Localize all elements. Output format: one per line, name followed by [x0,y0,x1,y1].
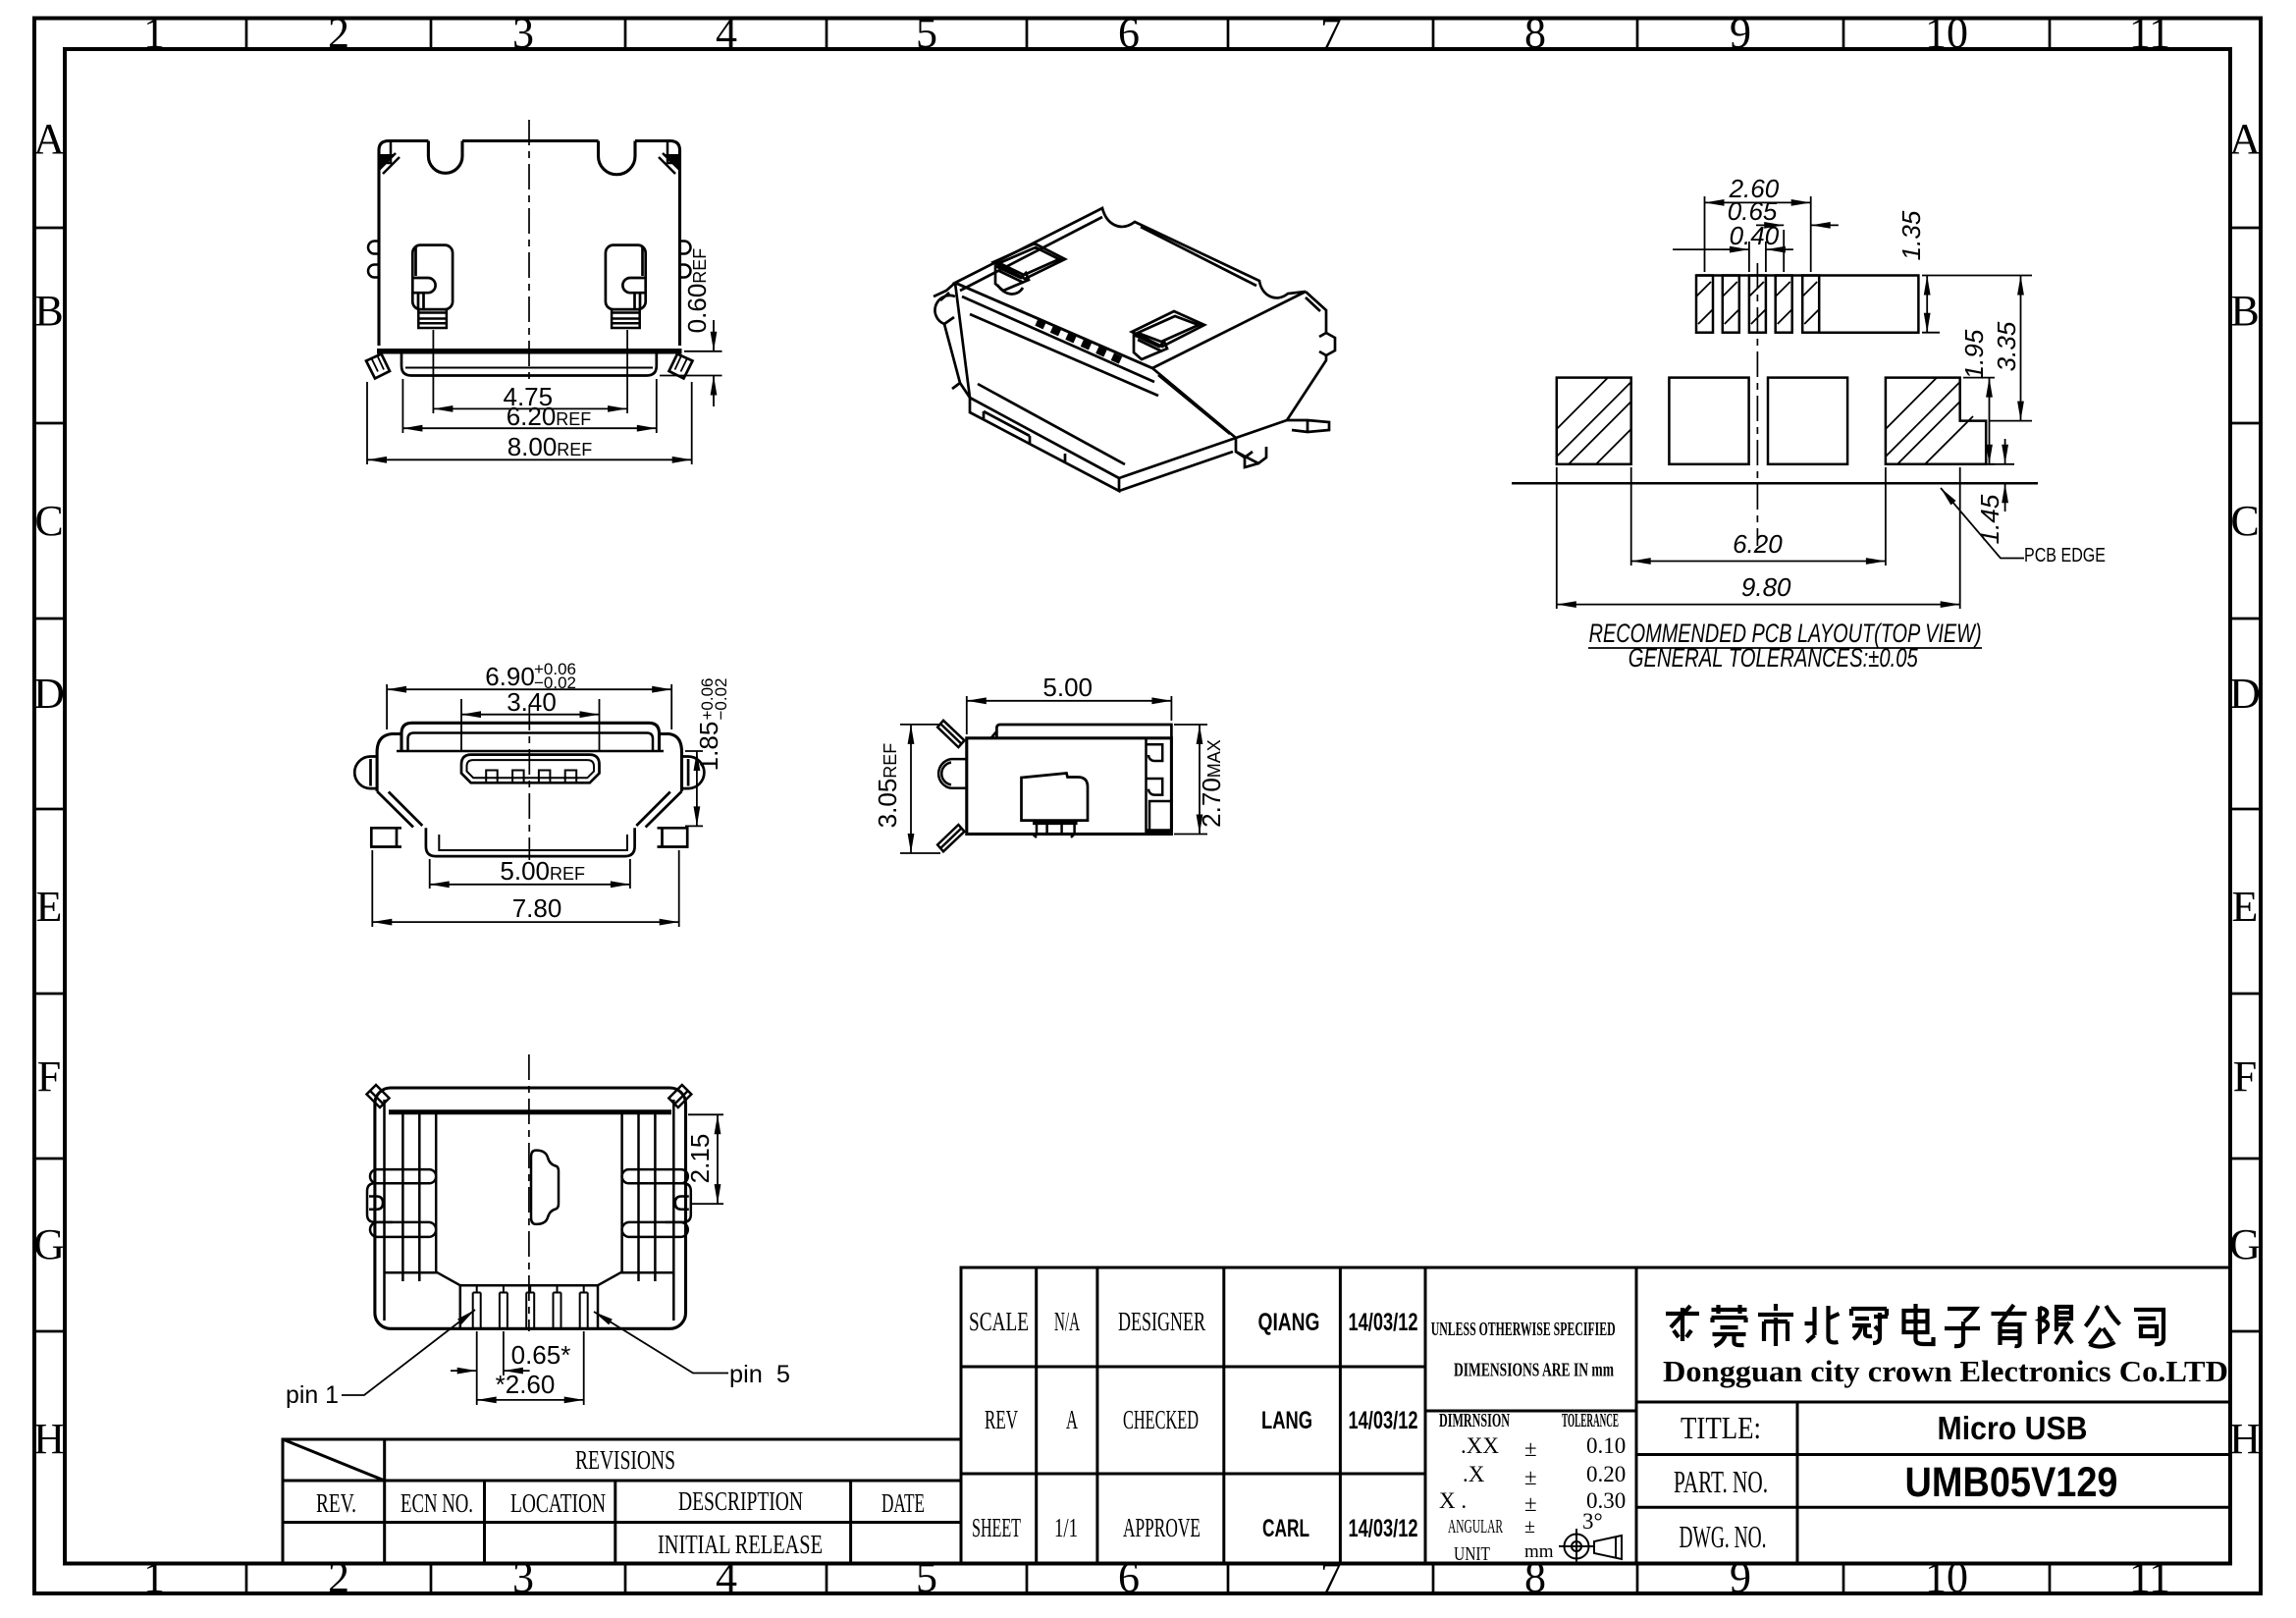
svg-text:.X: .X [1463,1462,1485,1486]
svg-text:GENERAL TOLERANCES:±0.05: GENERAL TOLERANCES:±0.05 [1629,643,1919,673]
svg-text:TOLERANCE: TOLERANCE [1562,1410,1619,1431]
svg-text:B: B [34,287,63,335]
svg-text:F: F [37,1052,61,1101]
svg-text:CHECKED: CHECKED [1123,1405,1199,1434]
svg-text:6: 6 [1118,9,1140,57]
svg-text:pin 5: pin 5 [729,1361,790,1388]
svg-text:DWG. NO.: DWG. NO. [1680,1519,1767,1554]
svg-text:0.20: 0.20 [1586,1462,1626,1486]
svg-text:10: 10 [1925,1553,1968,1601]
svg-text:9: 9 [1730,1553,1751,1601]
svg-text:11: 11 [2129,9,2170,57]
svg-text:4: 4 [716,9,737,57]
svg-text:6: 6 [1118,1553,1140,1601]
svg-text:10: 10 [1925,9,1968,57]
svg-text:1.95: 1.95 [1959,329,1989,379]
svg-text:3.35: 3.35 [1992,321,2021,371]
svg-text:Micro USB: Micro USB [1938,1410,2088,1446]
svg-text:LANG: LANG [1261,1407,1312,1434]
svg-text:SCALE: SCALE [969,1307,1029,1336]
svg-text:A: A [1066,1405,1078,1434]
svg-text:G: G [33,1220,65,1268]
svg-text:1: 1 [143,9,165,57]
svg-text:E: E [2232,883,2259,931]
svg-text:D: D [33,670,65,718]
svg-text:LOCATION: LOCATION [510,1488,606,1518]
svg-text:PCB EDGE: PCB EDGE [2024,545,2106,566]
svg-text:QIANG: QIANG [1258,1309,1320,1336]
svg-text:pin 1: pin 1 [286,1381,339,1409]
svg-text:REV.: REV. [316,1488,356,1518]
svg-text:UMB05V129: UMB05V129 [1905,1459,2118,1506]
svg-text:5: 5 [916,1553,937,1601]
svg-text:5.00: 5.00 [1042,673,1093,702]
svg-text:1/1: 1/1 [1054,1513,1078,1542]
svg-text:B: B [2230,287,2259,335]
svg-text:7.80: 7.80 [512,893,562,923]
svg-text:4: 4 [716,1553,737,1601]
svg-text:DESIGNER: DESIGNER [1118,1307,1205,1336]
svg-text:ECN NO.: ECN NO. [400,1488,473,1518]
svg-text:A: A [33,115,65,163]
svg-text:SHEET: SHEET [972,1513,1021,1542]
svg-text:0.10: 0.10 [1586,1433,1626,1458]
svg-text:C: C [34,497,63,545]
svg-text:H: H [33,1415,65,1463]
svg-text:7: 7 [1320,9,1342,57]
svg-text:.XX: .XX [1461,1433,1499,1458]
svg-text:9.80: 9.80 [1741,572,1791,602]
svg-text:REV: REV [985,1405,1018,1434]
svg-text:±: ± [1524,1516,1535,1537]
svg-text:N/A: N/A [1054,1307,1080,1336]
svg-text:DESCRIPTION: DESCRIPTION [678,1486,803,1516]
svg-text:1.85: 1.85 [694,722,723,772]
svg-text:3°: 3° [1582,1509,1603,1534]
svg-text:G: G [2229,1220,2261,1268]
svg-text:0.40: 0.40 [1730,221,1780,250]
svg-text:14/03/12: 14/03/12 [1349,1407,1418,1434]
svg-text:REVISIONS: REVISIONS [575,1445,675,1475]
svg-text:INITIAL RELEASE: INITIAL RELEASE [658,1530,823,1559]
svg-text:1.45: 1.45 [1975,494,2004,544]
svg-text:7: 7 [1320,1553,1342,1601]
svg-text:14/03/12: 14/03/12 [1349,1515,1418,1542]
svg-text:3: 3 [512,9,534,57]
svg-text:14/03/12: 14/03/12 [1349,1309,1418,1336]
svg-text:TITLE:: TITLE: [1681,1410,1761,1445]
svg-text:6.20: 6.20 [1733,529,1783,559]
svg-text:1: 1 [143,1553,165,1601]
svg-text:2: 2 [328,9,349,57]
svg-text:11: 11 [2129,1553,2170,1601]
svg-text:±: ± [1524,1436,1537,1461]
svg-text:Dongguan city crown Electronic: Dongguan city crown Electronics Co.LTD [1663,1354,2228,1388]
svg-text:APPROVE: APPROVE [1123,1513,1201,1542]
svg-text:3: 3 [512,1553,534,1601]
svg-text:1.35: 1.35 [1896,210,1926,260]
svg-text:5: 5 [916,9,937,57]
svg-text:UNLESS OTHERWISE SPECIFIED: UNLESS OTHERWISE SPECIFIED [1431,1319,1616,1340]
svg-text:8: 8 [1524,9,1546,57]
svg-text:E: E [36,883,63,931]
svg-text:9: 9 [1730,9,1751,57]
svg-text:0.65*: 0.65* [511,1340,571,1370]
svg-text:±: ± [1524,1491,1537,1516]
svg-text:A: A [2229,115,2261,163]
svg-text:mm: mm [1524,1541,1554,1562]
svg-text:ANGULAR: ANGULAR [1448,1516,1503,1537]
svg-text:PART. NO.: PART. NO. [1674,1464,1768,1499]
svg-text:DIMRNSION: DIMRNSION [1439,1410,1510,1431]
svg-text:D: D [2229,670,2261,718]
svg-text:2.15: 2.15 [685,1134,715,1184]
svg-text:DIMENSIONS ARE IN mm: DIMENSIONS ARE IN mm [1454,1360,1614,1381]
svg-text:X .: X . [1439,1488,1467,1513]
svg-text:F: F [2233,1052,2257,1101]
svg-text:CARL: CARL [1262,1515,1309,1542]
svg-text:DATE: DATE [881,1488,925,1518]
svg-text:*2.60: *2.60 [496,1370,556,1399]
svg-text:C: C [2230,497,2259,545]
svg-text:H: H [2229,1415,2261,1463]
svg-text:3.40: 3.40 [507,687,557,717]
svg-text:2: 2 [328,1553,349,1601]
svg-text:−0.02: −0.02 [712,677,730,720]
svg-text:UNIT: UNIT [1454,1543,1490,1565]
svg-text:±: ± [1524,1465,1537,1489]
